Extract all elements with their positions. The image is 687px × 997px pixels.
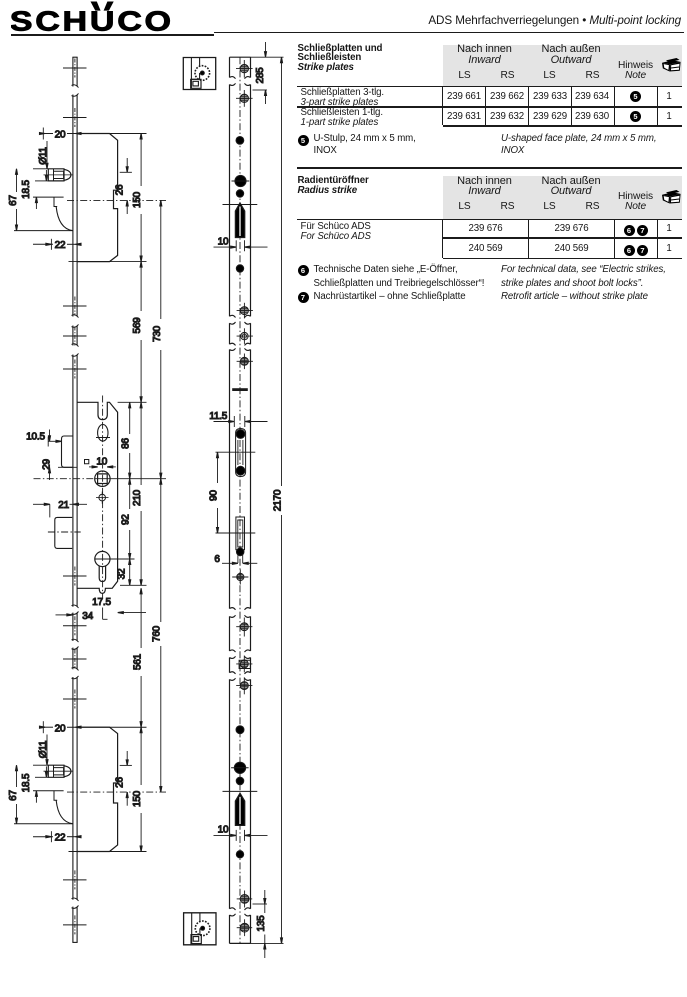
svg-text:18.5: 18.5 — [21, 773, 32, 792]
svg-text:569: 569 — [132, 317, 143, 334]
svg-text:67: 67 — [8, 195, 19, 206]
svg-text:26: 26 — [115, 777, 126, 788]
svg-text:210: 210 — [132, 489, 143, 506]
svg-text:22: 22 — [55, 240, 66, 251]
svg-text:Ø11: Ø11 — [38, 147, 49, 165]
svg-text:2170: 2170 — [273, 489, 284, 511]
svg-text:10: 10 — [96, 456, 107, 467]
svg-text:90: 90 — [208, 490, 219, 501]
svg-text:730: 730 — [152, 325, 163, 342]
svg-text:29: 29 — [41, 459, 52, 470]
svg-text:10: 10 — [218, 825, 229, 836]
svg-text:6: 6 — [214, 554, 220, 565]
svg-text:32: 32 — [117, 568, 128, 579]
svg-text:150: 150 — [132, 790, 143, 807]
svg-text:20: 20 — [55, 723, 66, 734]
svg-text:17.5: 17.5 — [92, 597, 111, 608]
svg-text:11.5: 11.5 — [209, 411, 228, 422]
svg-text:92: 92 — [121, 514, 132, 525]
svg-text:135: 135 — [256, 915, 267, 932]
svg-text:18.5: 18.5 — [21, 180, 32, 199]
svg-text:10: 10 — [218, 236, 229, 247]
svg-text:285: 285 — [255, 67, 266, 84]
svg-text:10.5: 10.5 — [26, 432, 45, 443]
svg-text:22: 22 — [55, 832, 66, 843]
svg-text:Ø11: Ø11 — [38, 740, 49, 758]
svg-text:20: 20 — [55, 130, 66, 141]
svg-text:26: 26 — [115, 184, 126, 195]
svg-text:760: 760 — [151, 625, 162, 642]
svg-text:67: 67 — [8, 790, 19, 801]
svg-text:21: 21 — [58, 500, 69, 511]
svg-text:34: 34 — [82, 611, 93, 622]
svg-text:150: 150 — [132, 191, 143, 208]
svg-text:561: 561 — [133, 653, 144, 670]
svg-text:86: 86 — [121, 438, 132, 449]
